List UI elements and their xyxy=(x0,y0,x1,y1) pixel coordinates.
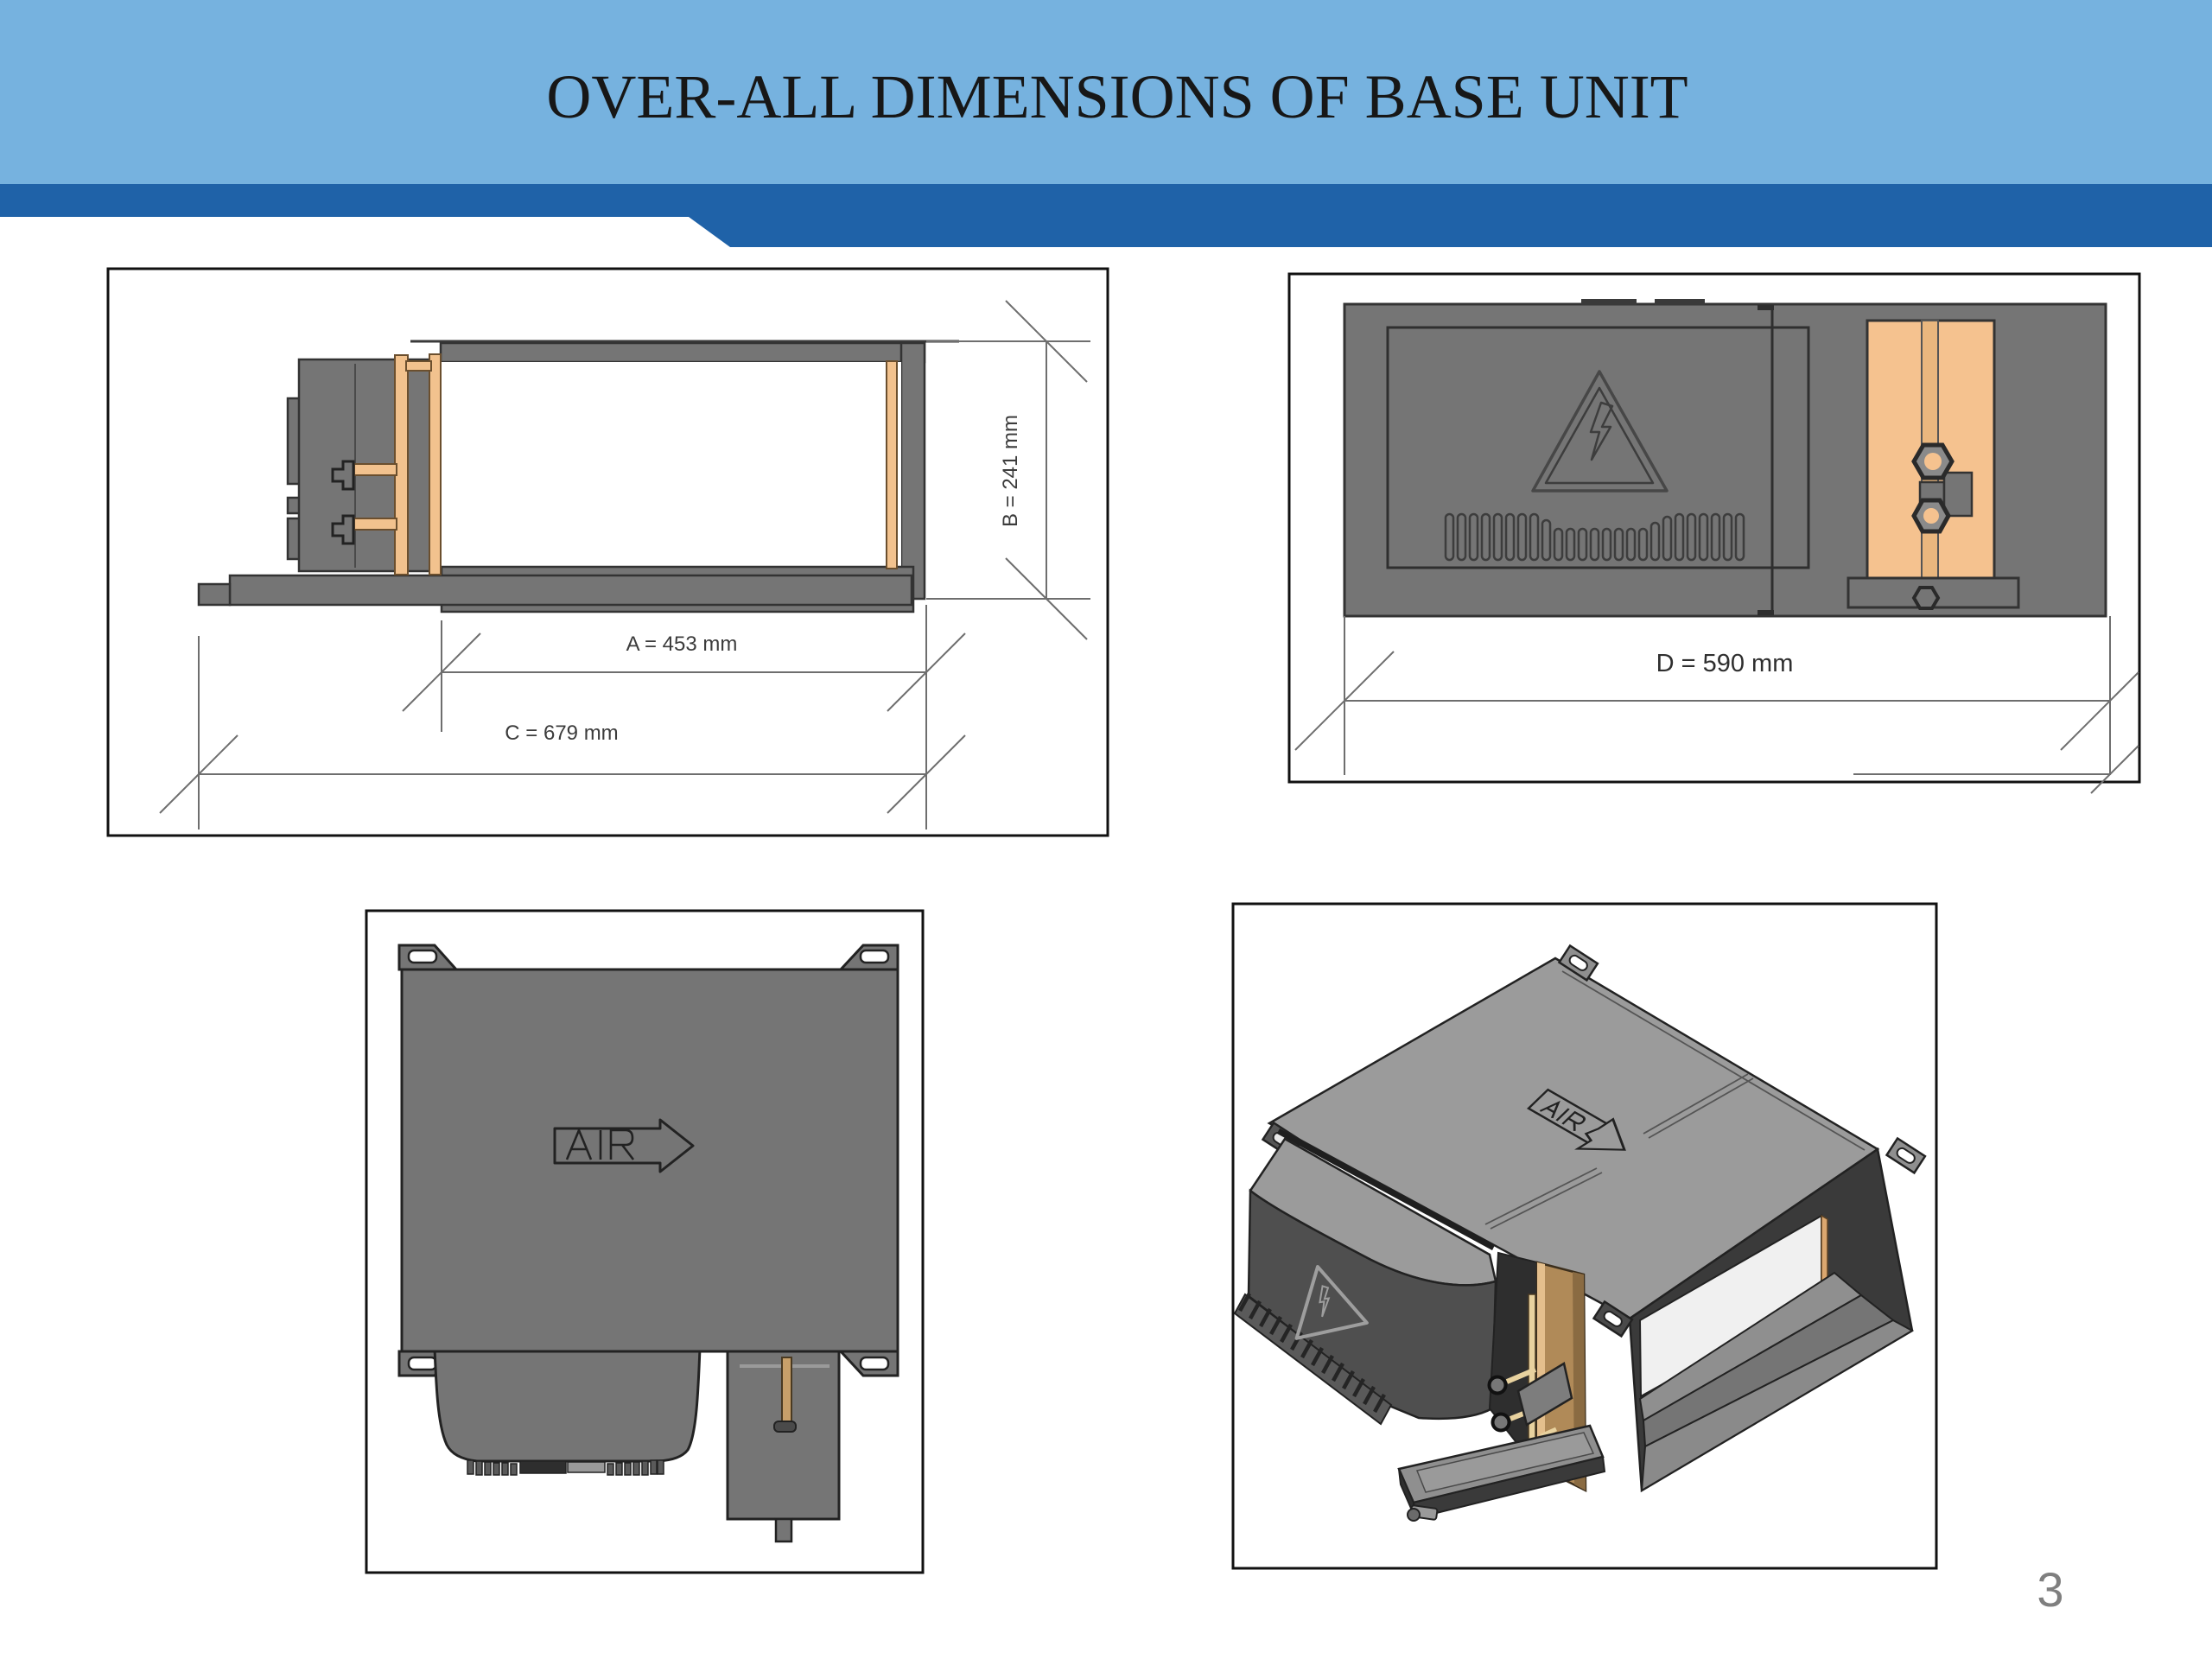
svg-text:3: 3 xyxy=(2037,1562,2063,1617)
svg-text:C = 679 mm: C = 679 mm xyxy=(505,721,618,745)
svg-text:D = 590 mm: D = 590 mm xyxy=(1656,650,1794,677)
svg-text:OVER-ALL DIMENSIONS OF BASE UN: OVER-ALL DIMENSIONS OF BASE UNIT xyxy=(546,62,1688,131)
svg-text:B = 241 mm: B = 241 mm xyxy=(999,415,1022,527)
svg-text:A = 453 mm: A = 453 mm xyxy=(626,632,738,656)
